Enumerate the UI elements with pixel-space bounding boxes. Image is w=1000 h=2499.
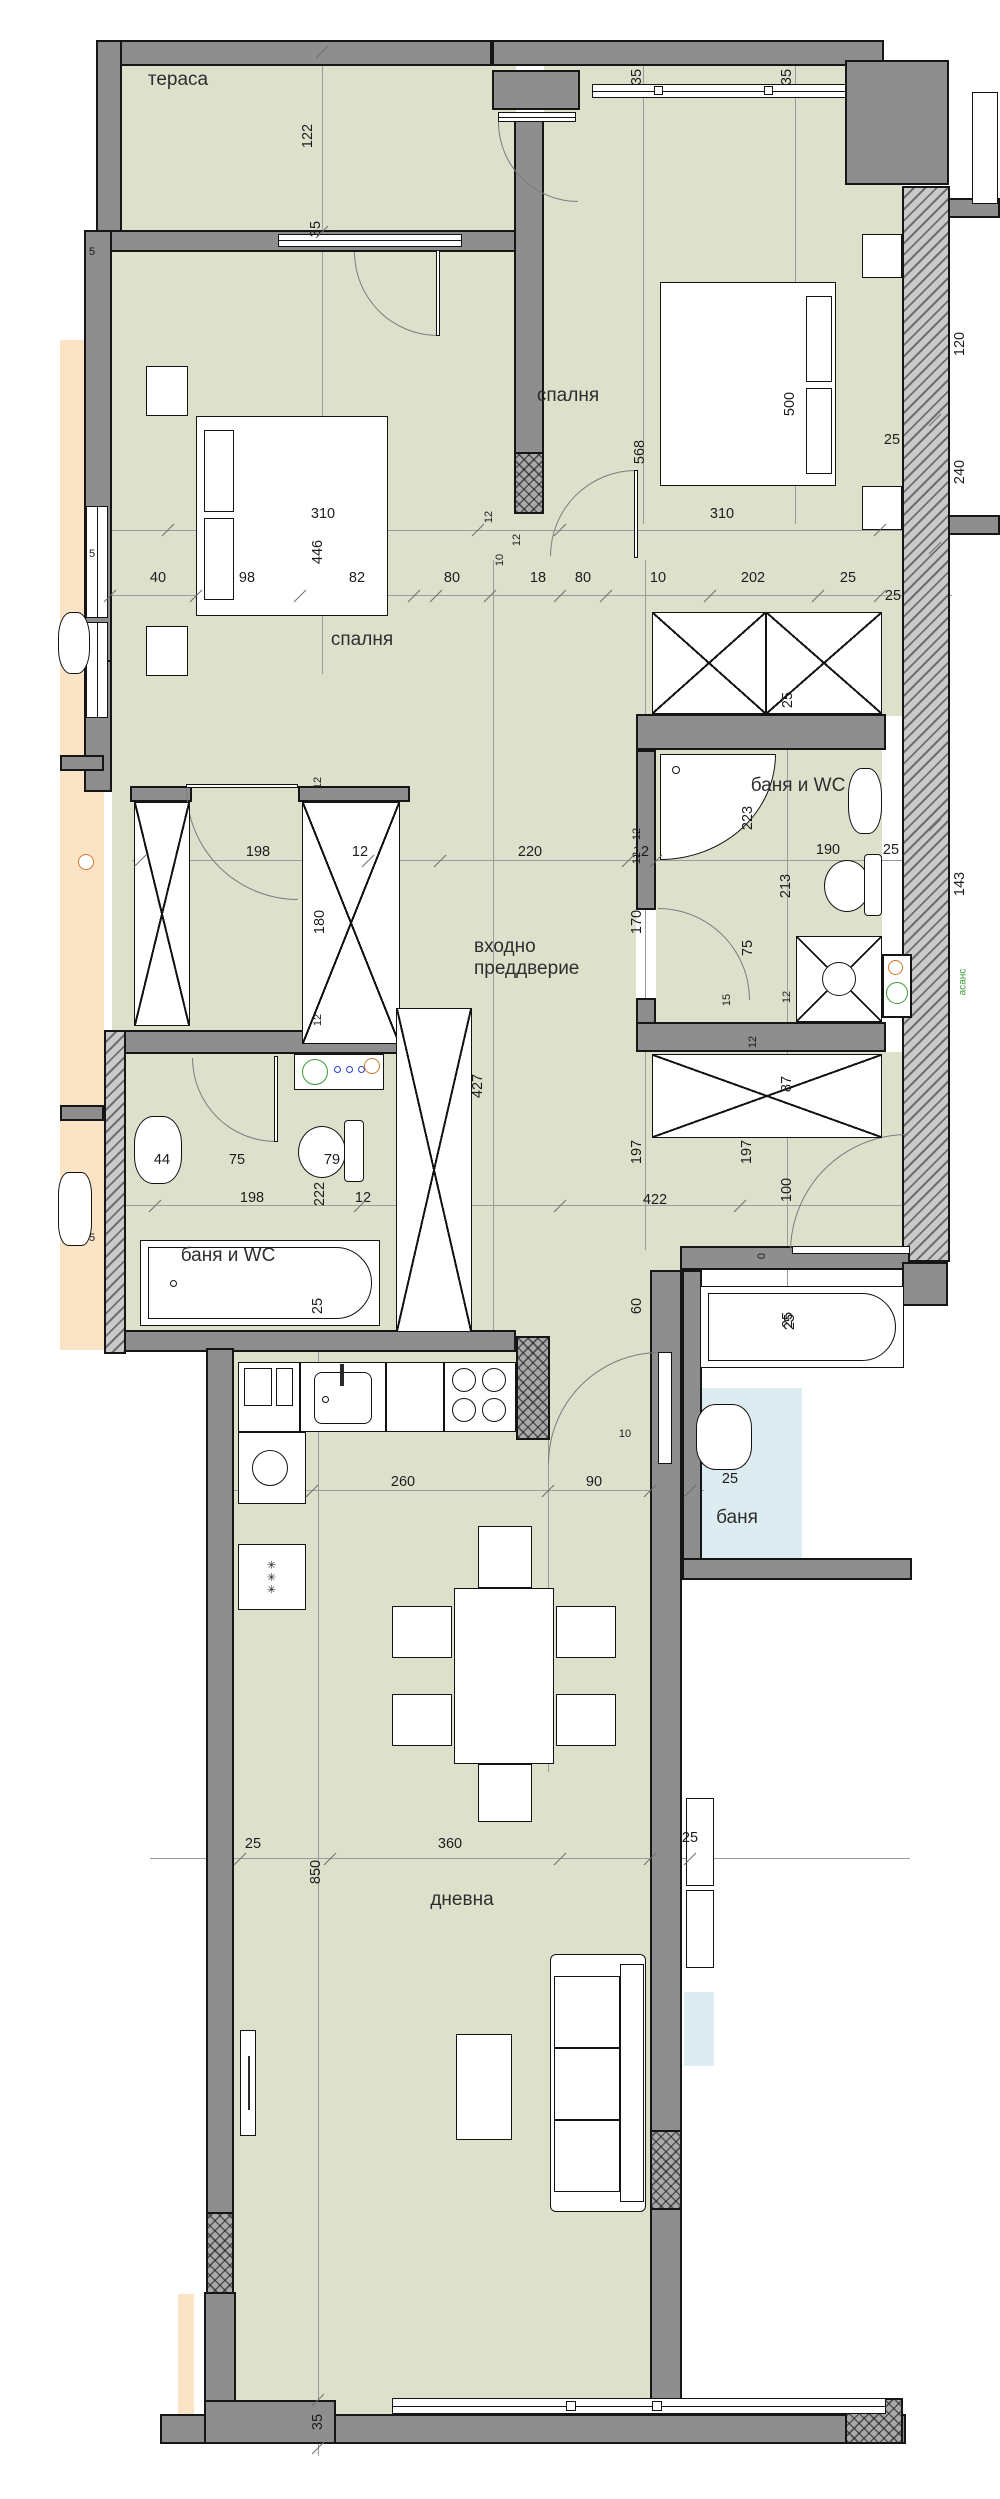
- boiler-valve-icon: [888, 960, 903, 975]
- pillow: [806, 296, 832, 382]
- dimension-label: 190: [816, 842, 840, 858]
- dimension-label: 850: [308, 1860, 324, 1884]
- wall-segment: [492, 40, 884, 66]
- dimension-label: 98: [239, 570, 255, 586]
- burner-icon: [452, 1398, 476, 1422]
- window: [392, 2398, 886, 2414]
- dimension-label: 12: [781, 991, 793, 1003]
- shower-drain: [822, 962, 856, 996]
- dimension-label: 100: [779, 1178, 795, 1202]
- dimension-label: 12: [511, 534, 523, 546]
- neighbor-valve-icon: [78, 854, 94, 870]
- dimension-label: 25: [883, 842, 899, 858]
- room-label-terrace: тераса: [148, 69, 208, 91]
- window: [278, 234, 462, 247]
- dimension-label: 25: [682, 1830, 698, 1846]
- dimension-label: 25: [245, 1836, 261, 1852]
- sink: [848, 768, 882, 834]
- dimension-label: 10: [650, 570, 666, 586]
- dimension-label: 198: [240, 1190, 264, 1206]
- kitchen-counter: [386, 1362, 444, 1432]
- boiler-icon: [886, 982, 908, 1004]
- door-leaf: [186, 784, 298, 788]
- room-label-neighbor-bath: баня: [716, 1507, 758, 1529]
- wall-segment: [60, 1105, 104, 1121]
- dimension-line: [150, 1858, 910, 1859]
- door-leaf: [274, 1056, 278, 1142]
- toilet-tank: [344, 1120, 364, 1182]
- dimension-label: 223: [740, 806, 756, 830]
- washer-knob-icon: [334, 1066, 341, 1073]
- party-wall-hatched: [902, 186, 950, 1262]
- wardrobe: [134, 802, 190, 1026]
- chair: [392, 1606, 452, 1658]
- kitchen-cabinet-door: [244, 1368, 272, 1406]
- dimension-label: 35: [629, 69, 645, 85]
- burner-icon: [482, 1368, 506, 1392]
- dimension-label: 18: [530, 570, 546, 586]
- window-mullion: [654, 86, 663, 95]
- dimension-label: 12: [312, 777, 324, 789]
- dimension-label: 222: [312, 1182, 328, 1206]
- dimension-label: 25: [310, 1298, 326, 1314]
- dimension-label: 10: [494, 554, 506, 566]
- dimension-label: 25: [780, 1312, 796, 1328]
- dimension-label: 5: [89, 1232, 95, 1244]
- wardrobe: [652, 612, 766, 714]
- dimension-label: 35: [310, 2414, 326, 2430]
- sink: [134, 1116, 182, 1184]
- dimension-label: 5: [89, 548, 95, 560]
- dimension-label: 310: [710, 506, 734, 522]
- nightstand: [862, 486, 902, 530]
- dimension-label: 220: [518, 844, 542, 860]
- chair: [478, 1526, 532, 1588]
- room-label-bedroom-right: спалня: [537, 385, 599, 407]
- tv-stand: [248, 2056, 250, 2110]
- dimension-label: 35: [779, 69, 795, 85]
- neighbor-fixture: [58, 612, 90, 674]
- chair: [556, 1694, 616, 1746]
- dimension-label: 12: [312, 1014, 324, 1026]
- pillow: [204, 518, 234, 600]
- dimension-label: 12: [483, 511, 495, 523]
- wall-segment: [948, 515, 1000, 535]
- wall-column: [516, 1336, 550, 1440]
- dimension-label: 568: [632, 440, 648, 464]
- washer-knob-icon: [346, 1066, 353, 1073]
- neighbor-room-strip: [684, 1992, 714, 2066]
- dimension-label: 44: [154, 1152, 170, 1168]
- dimension-label: 12: [352, 844, 368, 860]
- wall-hatched: [104, 1030, 126, 1354]
- pillow: [806, 388, 832, 474]
- wardrobe: [652, 1054, 882, 1138]
- dimension-label: 79: [324, 1152, 340, 1168]
- wall-column: [206, 2212, 234, 2296]
- hall-closet: [396, 1008, 472, 1332]
- door-leaf: [658, 1352, 672, 1464]
- dimension-label: асанс: [958, 969, 969, 996]
- dimension-label: 0: [756, 1253, 768, 1259]
- chair: [556, 1606, 616, 1658]
- nightstand: [862, 234, 902, 278]
- dimension-label: 500: [782, 392, 798, 416]
- dimension-label: 213: [778, 874, 794, 898]
- dimension-label: 260: [391, 1474, 415, 1490]
- sofa-back: [620, 1964, 644, 2202]
- dimension-line: [318, 1348, 319, 2456]
- kitchen-cabinet-door: [276, 1368, 293, 1406]
- door-leaf: [436, 250, 440, 336]
- wall-segment: [124, 1330, 516, 1352]
- wall-segment: [682, 1558, 912, 1580]
- sink-drain-icon: [322, 1396, 329, 1403]
- wall-segment: [60, 755, 104, 771]
- window-mullion: [652, 2401, 662, 2411]
- dimension-label: 170: [629, 910, 645, 934]
- dimension-label: 75: [740, 940, 756, 956]
- room-label-living-room: дневна: [430, 1889, 493, 1911]
- wall-segment: [130, 786, 192, 802]
- dimension-label: 310: [311, 506, 335, 522]
- dimension-label: 198: [246, 844, 270, 860]
- door-leaf: [634, 470, 638, 558]
- round-basin-icon: [252, 1450, 288, 1486]
- dimension-label: 122: [300, 124, 316, 148]
- dimension-label: 12: [747, 1036, 759, 1048]
- entrance-door-leaf: [792, 1246, 910, 1254]
- sofa-cushion: [554, 2048, 620, 2120]
- balcony-wardrobe: [492, 70, 580, 110]
- dimension-label: 25: [884, 432, 900, 448]
- wall-segment: [845, 60, 949, 185]
- dimension-line: [110, 1205, 910, 1206]
- window-mullion: [566, 2401, 576, 2411]
- dimension-label: 202: [741, 570, 765, 586]
- wall-segment: [636, 714, 886, 750]
- burner-icon: [452, 1368, 476, 1392]
- dimension-label: 90: [586, 1474, 602, 1490]
- room-label-bath-right: баня и WC: [751, 775, 846, 797]
- dimension-label: 15: [721, 994, 733, 1006]
- dimension-label: 82: [349, 570, 365, 586]
- wall-column: [650, 2130, 682, 2210]
- room-label-bath-left: баня и WC: [181, 1245, 276, 1267]
- dining-table: [454, 1588, 554, 1764]
- chair: [478, 1764, 532, 1822]
- dimension-label: 143: [952, 872, 968, 896]
- sofa-cushion: [554, 1976, 620, 2048]
- dimension-label: 180: [312, 910, 328, 934]
- dimension-label: 422: [643, 1192, 667, 1208]
- wall-segment: [902, 1262, 948, 1306]
- neighbor-door: [686, 1890, 714, 1968]
- burner-icon: [482, 1398, 506, 1422]
- neighbor-fixture: [58, 1172, 92, 1246]
- dimension-label: 427: [470, 1074, 486, 1098]
- wall-segment: [96, 40, 492, 66]
- dimension-label: 80: [444, 570, 460, 586]
- coffee-table: [456, 2034, 512, 2140]
- window-mullion: [764, 86, 773, 95]
- pillow: [204, 430, 234, 512]
- dimension-label: 60: [629, 1298, 645, 1314]
- dimension-label: 360: [438, 1836, 462, 1852]
- living-floor: [234, 1348, 650, 2416]
- dimension-label: 197: [629, 1140, 645, 1164]
- balcony-door-window: [498, 112, 576, 122]
- dimension-label: 40: [150, 570, 166, 586]
- room-label-entrance-hall: входно преддверие: [474, 936, 606, 980]
- dimension-label: 75: [229, 1152, 245, 1168]
- dimension-label: ✳ ✳ ✳: [266, 1560, 279, 1594]
- dimension-label: 120: [952, 332, 968, 356]
- dimension-label: 10: [619, 1428, 631, 1440]
- dimension-label: 12: [631, 828, 643, 840]
- dimension-label: 446: [310, 540, 326, 564]
- dimension-label: 25: [780, 692, 796, 708]
- wall-segment: [96, 40, 122, 232]
- dimension-label: 35: [308, 221, 324, 237]
- bathtub-drain-icon: [170, 1280, 177, 1287]
- dimension-label: 87: [779, 1076, 795, 1092]
- nightstand: [146, 366, 188, 416]
- faucet-icon: [340, 1364, 344, 1386]
- floor-plan: терасаспалняспалнявходно преддвериебаня …: [0, 0, 1000, 2499]
- shower-head-icon: [672, 766, 680, 774]
- dimension-label: 240: [952, 460, 968, 484]
- washer-drum-icon: [302, 1059, 328, 1085]
- dimension-label: 80: [575, 570, 591, 586]
- neighbor-window: [972, 92, 998, 204]
- dimension-label: 5: [89, 246, 95, 258]
- sofa-cushion: [554, 2120, 620, 2192]
- dimension-label: 25: [840, 570, 856, 586]
- dimension-label: 197: [739, 1140, 755, 1164]
- dimension-label: 25: [722, 1471, 738, 1487]
- wall-column: [514, 452, 544, 514]
- dimension-label: 25: [885, 588, 901, 604]
- sink: [696, 1404, 752, 1470]
- nightstand: [146, 626, 188, 676]
- window: [592, 84, 846, 98]
- toilet-tank: [864, 854, 882, 916]
- room-label-bedroom-left: спалня: [331, 629, 393, 651]
- bathtub-basin: [708, 1293, 896, 1361]
- washer-dial-icon: [364, 1058, 380, 1074]
- chair: [392, 1694, 452, 1746]
- wall-segment: [636, 1022, 886, 1052]
